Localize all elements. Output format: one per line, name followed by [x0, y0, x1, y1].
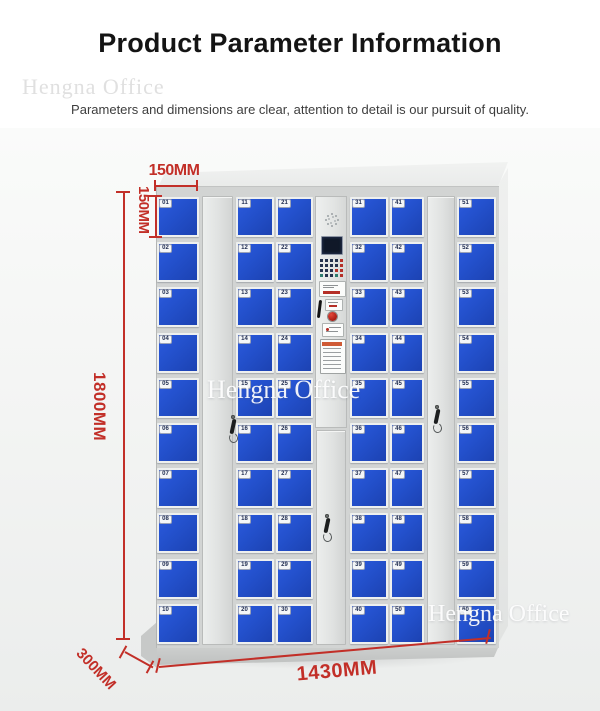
key-right-door: [430, 405, 444, 435]
locker-number: 46: [393, 426, 404, 433]
locker-number: 31: [353, 200, 364, 207]
page-title: Product Parameter Information: [0, 28, 600, 59]
dim-tick: [116, 191, 130, 193]
locker-number: 13: [239, 290, 250, 297]
locker-number: 45: [393, 381, 404, 388]
locker-number: 29: [279, 562, 290, 569]
watermark-center: Hengna Office: [207, 375, 360, 405]
locker-door-11: 11: [236, 197, 274, 237]
emergency-button: [328, 312, 337, 321]
locker-door-09: 09: [157, 559, 199, 599]
locker-number: 41: [393, 200, 404, 207]
locker-door-49: 49: [390, 559, 424, 599]
key-ring-icon: [228, 432, 239, 444]
key-ring-icon: [322, 531, 333, 543]
dim-door-height-line: [155, 196, 157, 238]
key-ring-icon: [432, 422, 443, 434]
locker-number: 18: [239, 516, 250, 523]
locker-door-26: 26: [276, 423, 313, 463]
locker-number: 02: [160, 245, 171, 252]
locker-number: 05: [160, 381, 171, 388]
locker-door-17: 17: [236, 468, 274, 508]
locker-number: 50: [393, 607, 404, 614]
locker-door-38: 38: [350, 513, 388, 553]
locker-door-29: 29: [276, 559, 313, 599]
locker-number: 19: [239, 562, 250, 569]
locker-number: 28: [279, 516, 290, 523]
locker-door-22: 22: [276, 242, 313, 282]
locker-door-19: 19: [236, 559, 274, 599]
locker-number: 57: [460, 471, 471, 478]
locker-door-06: 06: [157, 423, 199, 463]
locker-door-16: 16: [236, 423, 274, 463]
locker-door-30: 30: [276, 604, 313, 644]
locker-number: 37: [353, 471, 364, 478]
locker-number: 09: [160, 562, 171, 569]
locker-door-23: 23: [276, 287, 313, 327]
key-center-door: [320, 514, 334, 544]
locker-door-39: 39: [350, 559, 388, 599]
locker-number: 01: [160, 200, 171, 207]
dim-door-width-label: 150MM: [144, 162, 204, 180]
locker-door-07: 07: [157, 468, 199, 508]
dim-height-label: 1800MM: [89, 372, 109, 464]
locker-number: 58: [460, 516, 471, 523]
locker-door-54: 54: [457, 333, 496, 373]
locker-door-59: 59: [457, 559, 496, 599]
locker-door-04: 04: [157, 333, 199, 373]
dim-height-line: [123, 192, 125, 640]
locker-door-55: 55: [457, 378, 496, 418]
locker-number: 12: [239, 245, 250, 252]
locker-number: 11: [239, 200, 250, 207]
locker-number: 26: [279, 426, 290, 433]
locker-number: 21: [279, 200, 290, 207]
locker-door-50: 50: [390, 604, 424, 644]
locker-door-05: 05: [157, 378, 199, 418]
locker-column-6: 51525354555657585960: [457, 188, 496, 648]
locker-door-47: 47: [390, 468, 424, 508]
locker-door-03: 03: [157, 287, 199, 327]
locker-door-52: 52: [457, 242, 496, 282]
locker-number: 39: [353, 562, 364, 569]
watermark-top-left: Hengna Office: [22, 74, 165, 100]
locker-door-13: 13: [236, 287, 274, 327]
locker-number: 55: [460, 381, 471, 388]
locker-number: 44: [393, 336, 404, 343]
locker-number: 22: [279, 245, 290, 252]
locker-number: 03: [160, 290, 171, 297]
locker-door-51: 51: [457, 197, 496, 237]
locker-number: 30: [279, 607, 290, 614]
locker-door-57: 57: [457, 468, 496, 508]
locker-number: 52: [460, 245, 471, 252]
locker-door-34: 34: [350, 333, 388, 373]
locker-number: 43: [393, 290, 404, 297]
locker-door-33: 33: [350, 287, 388, 327]
locker-door-10: 10: [157, 604, 199, 644]
locker-number: 04: [160, 336, 171, 343]
locker-number: 49: [393, 562, 404, 569]
locker-number: 53: [460, 290, 471, 297]
locker-column-2: 11121314151617181920: [236, 188, 274, 648]
locker-column-5: 41424344454647484950: [390, 188, 424, 648]
locker-door-43: 43: [390, 287, 424, 327]
locker-door-56: 56: [457, 423, 496, 463]
locker-number: 23: [279, 290, 290, 297]
locker-number: 24: [279, 336, 290, 343]
dim-tick: [116, 638, 130, 640]
locker-door-02: 02: [157, 242, 199, 282]
locker-number: 27: [279, 471, 290, 478]
product-parameter-image: Product Parameter Information Hengna Off…: [0, 0, 600, 711]
locker-door-18: 18: [236, 513, 274, 553]
locker-door-31: 31: [350, 197, 388, 237]
keypad: [320, 259, 323, 262]
dim-tick: [149, 236, 162, 238]
locker-column-1: 01020304050607080910: [157, 188, 199, 648]
locker-number: 20: [239, 607, 250, 614]
locker-number: 54: [460, 336, 471, 343]
locker-column-4: 31323334353637383940: [350, 188, 388, 648]
locker-number: 34: [353, 336, 364, 343]
locker-door-20: 20: [236, 604, 274, 644]
key-left-door: [226, 415, 240, 445]
card-reader-label: [319, 281, 346, 297]
locker-number: 36: [353, 426, 364, 433]
locker-door-28: 28: [276, 513, 313, 553]
locker-door-48: 48: [390, 513, 424, 553]
locker-door-46: 46: [390, 423, 424, 463]
locker-door-36: 36: [350, 423, 388, 463]
locker-door-21: 21: [276, 197, 313, 237]
locker-door-41: 41: [390, 197, 424, 237]
locker-number: 10: [160, 607, 171, 614]
locker-door-44: 44: [390, 333, 424, 373]
locker-number: 38: [353, 516, 364, 523]
locker-door-40: 40: [350, 604, 388, 644]
dim-tick: [149, 195, 162, 197]
display-screen: [321, 236, 343, 255]
locker-door-37: 37: [350, 468, 388, 508]
locker-number: 51: [460, 200, 471, 207]
locker-door-12: 12: [236, 242, 274, 282]
stylus-pen: [317, 300, 322, 318]
locker-number: 17: [239, 471, 250, 478]
locker-number: 08: [160, 516, 171, 523]
locker-number: 33: [353, 290, 364, 297]
dim-tick: [154, 180, 156, 191]
locker-number: 47: [393, 471, 404, 478]
locker-door-58: 58: [457, 513, 496, 553]
locker-column-3: 21222324252627282930: [276, 188, 313, 648]
locker-door-27: 27: [276, 468, 313, 508]
locker-door-01: 01: [157, 197, 199, 237]
locker-door-45: 45: [390, 378, 424, 418]
watermark-bottom-right: Hengna Office: [428, 601, 570, 628]
locker-door-24: 24: [276, 333, 313, 373]
locker-number: 32: [353, 245, 364, 252]
mini-label: [325, 299, 343, 311]
locker-number: 14: [239, 336, 250, 343]
locker-door-08: 08: [157, 513, 199, 553]
locker-door-53: 53: [457, 287, 496, 327]
locker-number: 16: [239, 426, 250, 433]
locker-door-32: 32: [350, 242, 388, 282]
locker-number: 48: [393, 516, 404, 523]
locker-number: 07: [160, 471, 171, 478]
locker-number: 56: [460, 426, 471, 433]
locker-number: 40: [353, 607, 364, 614]
locker-number: 59: [460, 562, 471, 569]
page-subtitle: Parameters and dimensions are clear, att…: [0, 102, 600, 117]
dim-door-width-line: [154, 185, 198, 187]
instruction-label: [320, 339, 346, 374]
locker-number: 06: [160, 426, 171, 433]
locker-number: 42: [393, 245, 404, 252]
info-label: [322, 323, 344, 337]
dim-tick: [196, 180, 198, 191]
speaker-icon: [331, 219, 333, 221]
locker-door-14: 14: [236, 333, 274, 373]
locker-door-42: 42: [390, 242, 424, 282]
